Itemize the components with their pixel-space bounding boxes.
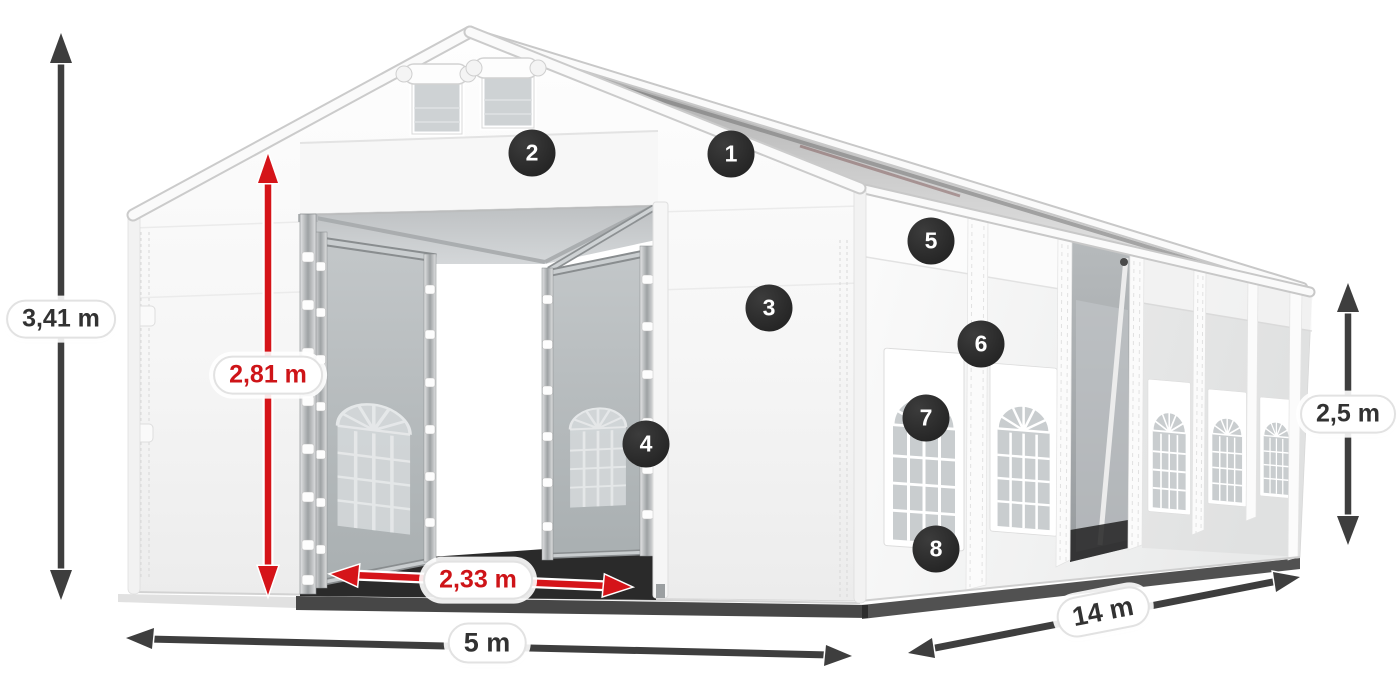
door-window-print bbox=[338, 400, 411, 534]
side-window-5 bbox=[1260, 397, 1293, 499]
callout-badge-3[interactable]: 3 bbox=[746, 285, 793, 332]
door-frame-pole bbox=[640, 246, 654, 556]
callout-badge-5[interactable]: 5 bbox=[908, 218, 955, 265]
right-entrance-post bbox=[653, 202, 668, 598]
left-door-panel bbox=[314, 232, 436, 588]
side-window-3 bbox=[1148, 379, 1190, 515]
callout-badge-6[interactable]: 6 bbox=[958, 321, 1005, 368]
entrance-interior bbox=[300, 200, 660, 604]
door-window-print bbox=[570, 407, 626, 507]
callout-badge-7[interactable]: 7 bbox=[903, 395, 950, 442]
dimension-label-wall-height: 2,5 m bbox=[1300, 395, 1396, 434]
front-left-corner-pole bbox=[128, 214, 140, 594]
callout-badge-8[interactable]: 8 bbox=[913, 526, 960, 573]
tent-dimension-diagram: 3,41 m 2,81 m 2,33 m 5 m 14 m 2,5 m 1 2 … bbox=[0, 0, 1400, 700]
entrance-lintel bbox=[300, 130, 658, 216]
vent-roll bbox=[404, 64, 468, 84]
dimension-label-front-width: 5 m bbox=[448, 622, 527, 663]
door-frame-pole bbox=[542, 268, 553, 560]
side-window-2 bbox=[990, 363, 1057, 536]
dimension-label-entrance-width: 2,33 m bbox=[423, 561, 533, 600]
side-entrance-opening bbox=[1070, 240, 1130, 562]
post-foot bbox=[656, 584, 665, 598]
door-roller-hardware-icon bbox=[1120, 258, 1128, 266]
dimension-label-entrance-height: 2,81 m bbox=[213, 356, 323, 395]
callout-badge-2[interactable]: 2 bbox=[509, 130, 556, 177]
door-frame-pole bbox=[424, 254, 436, 562]
tent-illustration bbox=[0, 0, 1400, 700]
callout-badge-4[interactable]: 4 bbox=[623, 421, 670, 468]
side-window-1 bbox=[884, 348, 964, 551]
front-right-corner-pole bbox=[854, 186, 866, 603]
callout-badge-1[interactable]: 1 bbox=[708, 131, 755, 178]
side-window-4 bbox=[1208, 389, 1246, 507]
vent-roll bbox=[474, 58, 538, 78]
dimension-label-total-height: 3,41 m bbox=[6, 300, 116, 339]
